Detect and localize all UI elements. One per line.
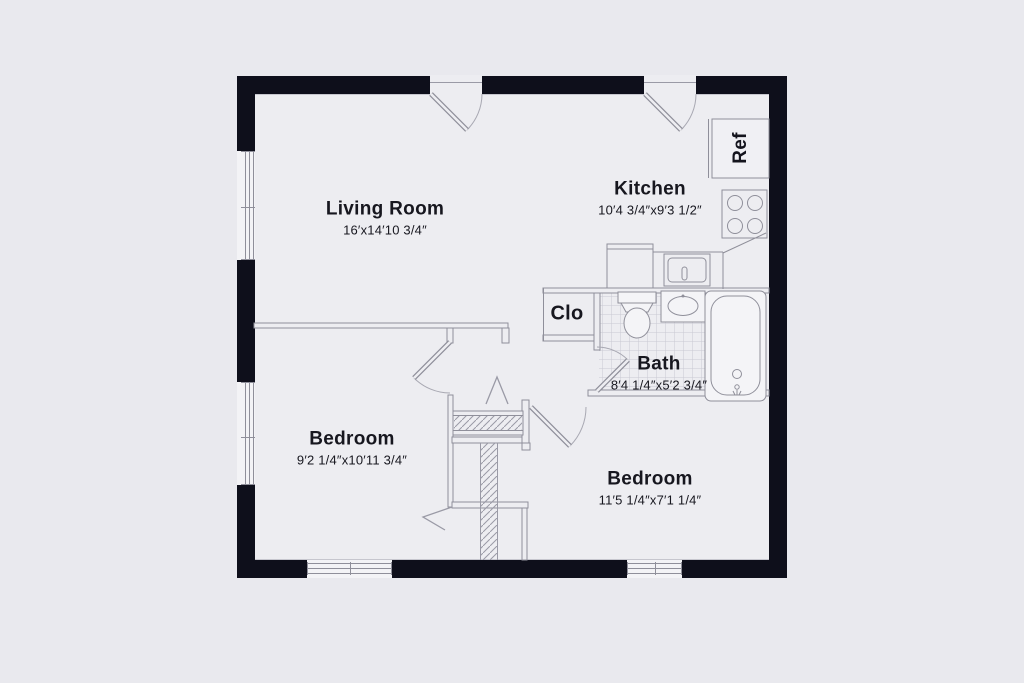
bathtub [705,291,766,401]
stair-wall-notch [522,443,530,450]
entry-door-opening-1 [430,75,482,95]
window-bottom-2 [627,560,682,578]
floor-plan-drawing [0,0,1024,683]
exterior-wall-right [769,76,787,578]
wall-living-bedroom1 [254,323,508,328]
floor-plan: Living Room 16′x14′10 3/4″ Kitchen 10′4 … [0,0,1024,683]
bath-sink [661,291,705,322]
stair-run-lower-hatch [481,443,497,560]
entry-door-opening-2 [644,75,696,95]
stair-wall-under-run [452,437,528,443]
window-left-1 [237,151,255,260]
stair-run-upper-hatch [454,416,522,430]
exterior-wall-top [237,76,787,94]
window-bottom-1 [307,560,392,578]
wall-pilaster-right [502,328,509,343]
stair-wall-right-bottom [522,508,527,560]
kitchen-sink [664,254,710,286]
stair-wall-left [448,395,453,507]
wall-closet-bottom [543,335,595,341]
refrigerator [709,119,770,178]
dishwasher [607,244,653,288]
window-left-2 [237,382,255,485]
stove [722,190,767,238]
wall-bath-left [594,293,600,350]
